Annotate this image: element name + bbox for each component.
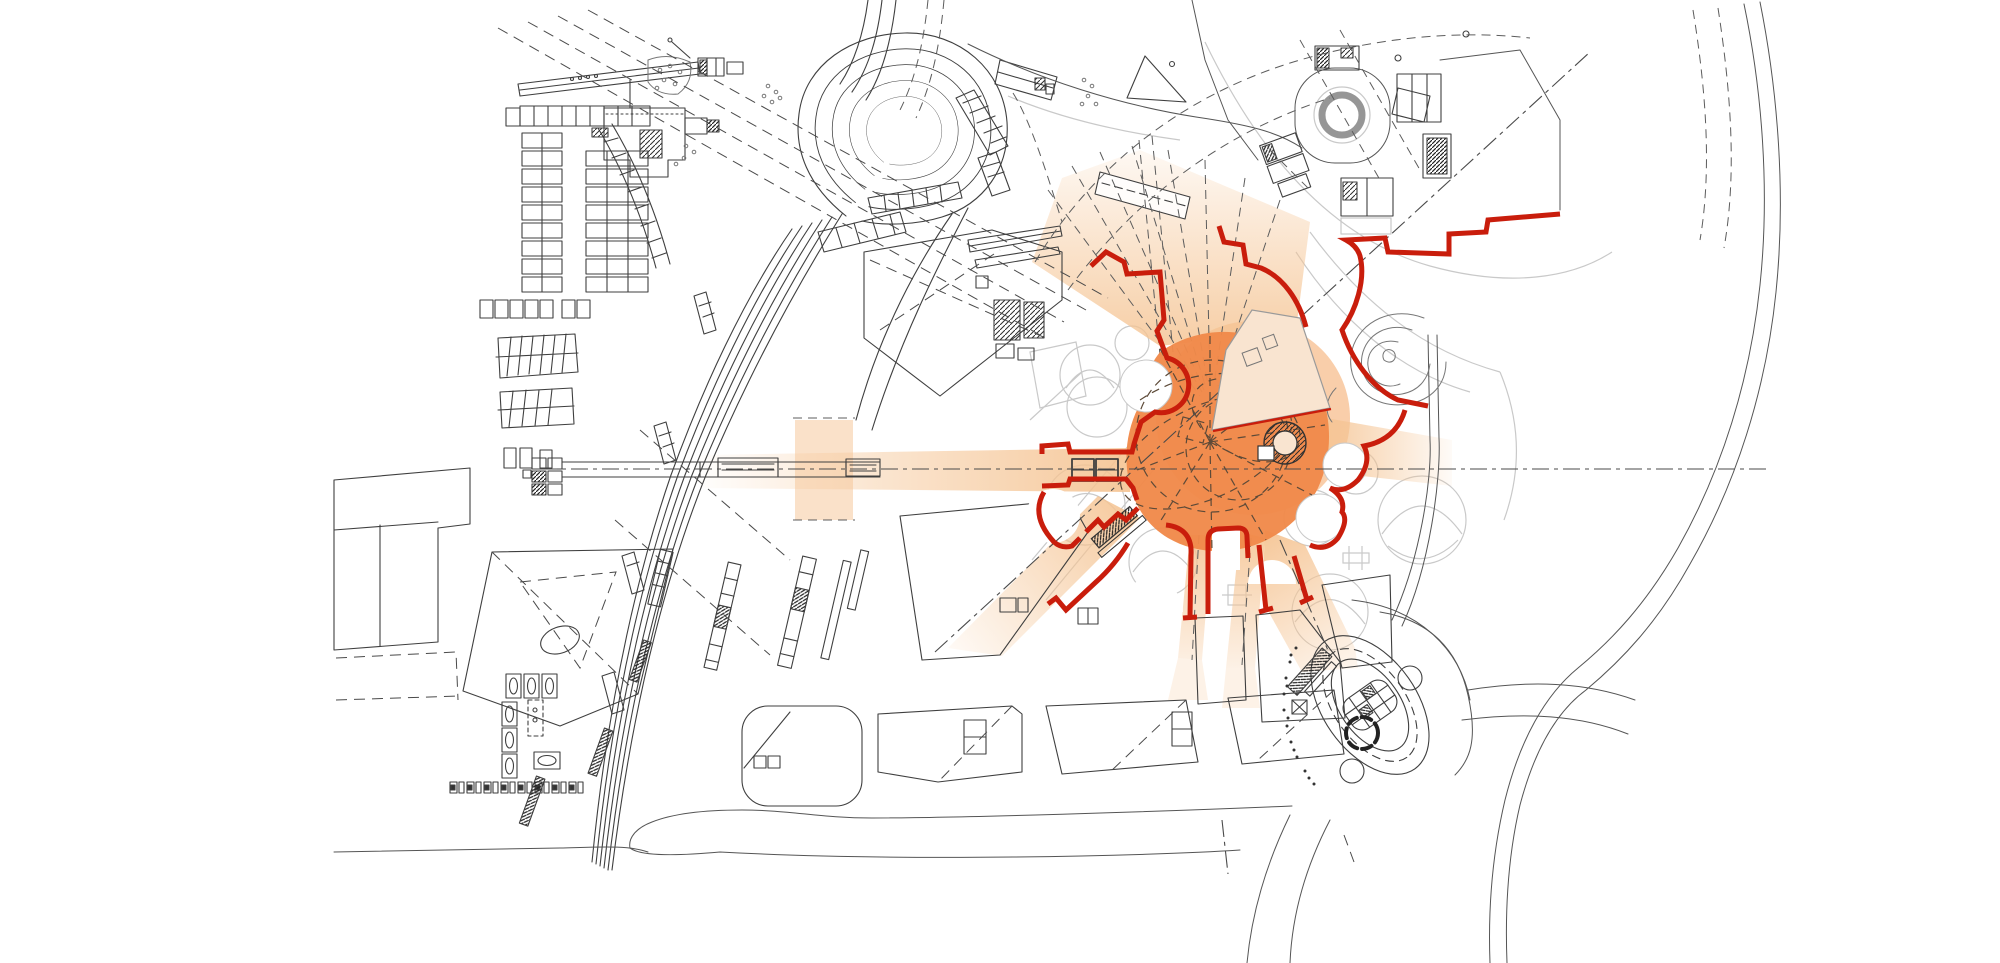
site-plan-canvas bbox=[0, 0, 2000, 963]
masterplan-drawing bbox=[0, 0, 2000, 963]
corridor-west-plaza bbox=[795, 420, 853, 520]
